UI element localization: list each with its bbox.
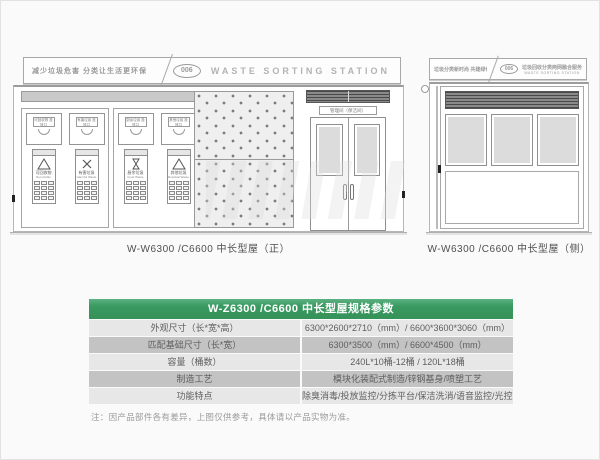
hourglass-icon	[129, 158, 143, 170]
spec-value: 除臭消毒/投放监控/分拣平台/保洁洗消/语音监控/光控照明	[302, 388, 513, 404]
port-label: 可回收物 投放口	[33, 117, 55, 127]
category-sign-panel: 厨余垃圾 Food Waste	[124, 149, 148, 204]
front-fascia-banner: 减少垃圾危害 分类让生活更环保 006 WASTE SORTING STATIO…	[23, 57, 401, 84]
category-sign-panel: 可回收物 Recyclable	[32, 149, 56, 204]
front-view-caption: W-W6300 /C6600 中长型屋（正）	[13, 240, 404, 255]
bin-name-en: Harmful Waste	[77, 176, 97, 180]
door-handle	[343, 184, 347, 200]
stone-panel-column	[194, 91, 294, 228]
cross-icon	[80, 158, 94, 170]
front-signage-strip	[21, 91, 201, 102]
deposit-bay-1: 可回收物 投放口 可回收物 Recyclable 有	[21, 108, 109, 228]
chute-flap	[173, 129, 185, 135]
chute-flap	[81, 129, 93, 135]
spec-value: 240L*10桶-12桶 / 120L*18桶	[302, 354, 513, 370]
spec-table: W-Z6300 /C6600 中长型屋规格参数 外观尺寸（长*宽*高） 6300…	[89, 299, 513, 404]
vent-louver	[306, 90, 390, 103]
spec-table-title: W-Z6300 /C6600 中长型屋规格参数	[89, 299, 513, 319]
spec-label: 外观尺寸（长*宽*高）	[89, 320, 300, 336]
side-vent-circle	[421, 85, 429, 93]
spec-label: 匹配基础尺寸（长*宽）	[89, 337, 300, 353]
instruction-grid	[169, 181, 189, 200]
door-glass	[354, 124, 381, 176]
deposit-unit-harmful: 有害垃圾 投放口 有害垃圾 Harmful Waste	[65, 109, 108, 227]
management-room-section: 管理间（保洁间）	[302, 87, 394, 233]
deposit-window: 厨余垃圾 投放口	[118, 113, 154, 145]
side-window	[537, 114, 579, 166]
door-sign: 管理间（保洁间）	[319, 106, 377, 115]
spec-value: 6300*2600*2710（mm）/ 6600*3600*3060（mm）	[302, 320, 513, 336]
spec-label: 制造工艺	[89, 371, 300, 387]
table-row: 制造工艺 模块化装配式制造/锌钢基身/喷塑工艺	[89, 371, 513, 387]
front-banner-title: WASTE SORTING STATION	[201, 66, 400, 76]
door-leaf-right	[349, 118, 386, 230]
side-window	[445, 114, 487, 166]
front-base-line	[10, 232, 407, 235]
category-sign-panel: 其他垃圾 Residual Waste	[167, 149, 191, 204]
side-fascia-banner: 垃圾分类新时尚 共建绿色新家园 006 垃圾回收分类两网融合服务 WASTE S…	[429, 58, 587, 80]
recycle-icon	[172, 158, 186, 170]
wall-tick-mark	[12, 195, 15, 202]
stone-panel-upper	[194, 91, 294, 160]
front-elevation-drawing: 可回收物 投放口 可回收物 Recyclable 有	[13, 85, 404, 232]
deposit-bay-2: 厨余垃圾 投放口 厨余垃圾 Food Waste 其	[113, 108, 201, 228]
deposit-window: 可回收物 投放口	[26, 113, 62, 145]
instruction-grid	[126, 181, 146, 200]
side-vent-louver	[445, 91, 579, 109]
spec-value: 模块化装配式制造/锌钢基身/喷塑工艺	[302, 371, 513, 387]
deposit-window: 其他垃圾 投放口	[161, 113, 197, 145]
bin-name-en: Residual Waste	[168, 176, 189, 180]
port-label: 有害垃圾 投放口	[76, 117, 98, 127]
deposit-unit-food: 厨余垃圾 投放口 厨余垃圾 Food Waste	[114, 109, 157, 227]
side-view-caption: W-W6300 /C6600 中长型屋（侧）	[421, 240, 597, 255]
instruction-grid	[34, 181, 54, 200]
instruction-grid	[77, 181, 97, 200]
door-leaf-left	[311, 118, 349, 230]
spec-label: 功能特点	[89, 388, 300, 404]
table-row: 功能特点 除臭消毒/投放监控/分拣平台/保洁洗消/语音监控/光控照明	[89, 388, 513, 404]
bin-name-en: Food Waste	[127, 176, 143, 180]
spec-value: 6300*3500（mm）/ 6600*4500（mm）	[302, 337, 513, 353]
side-base-line	[426, 232, 592, 235]
table-row: 外观尺寸（长*宽*高） 6300*2600*2710（mm）/ 6600*360…	[89, 320, 513, 336]
side-banner-title-cn: 垃圾回收分类两网融合服务	[522, 64, 582, 71]
table-footnote: 注：因产品部件各有差异，上图仅供参考，具体请以产品实物为准。	[91, 411, 355, 423]
wall-tick-mark	[438, 165, 441, 173]
side-wall-panel	[440, 86, 584, 229]
wall-tick-mark	[402, 191, 405, 198]
station-number-badge: 006	[500, 64, 518, 74]
door-glass	[316, 124, 343, 176]
side-window-row	[445, 114, 579, 166]
side-lower-panel	[445, 171, 579, 224]
chute-flap	[130, 129, 142, 135]
sign-header-chip	[76, 150, 98, 156]
chute-flap	[38, 129, 50, 135]
stone-panel-lower	[194, 160, 294, 228]
bin-name-en: Recyclable	[36, 176, 52, 180]
sign-header-chip	[33, 150, 55, 156]
port-label: 厨余垃圾 投放口	[125, 117, 147, 127]
port-label: 其他垃圾 投放口	[168, 117, 190, 127]
deposit-window: 有害垃圾 投放口	[69, 113, 105, 145]
sign-header-chip	[168, 150, 190, 156]
station-number-badge: 006	[173, 64, 201, 78]
banner-divider	[488, 56, 499, 83]
double-door	[310, 117, 386, 231]
product-spec-sheet: 减少垃圾危害 分类让生活更环保 006 WASTE SORTING STATIO…	[0, 0, 600, 460]
side-corner-stile	[436, 86, 438, 229]
sign-header-chip	[125, 150, 147, 156]
side-banner-title-en: WASTE SORTING STATION	[522, 71, 582, 75]
front-banner-slogan: 减少垃圾危害 分类让生活更环保	[24, 66, 160, 76]
category-sign-panel: 有害垃圾 Harmful Waste	[75, 149, 99, 204]
side-banner-slogan: 垃圾分类新时尚 共建绿色新家园	[430, 66, 487, 73]
side-window	[491, 114, 533, 166]
deposit-unit-recyclable: 可回收物 投放口 可回收物 Recyclable	[22, 109, 65, 227]
side-elevation-drawing	[429, 82, 589, 232]
recycle-icon	[37, 158, 51, 170]
banner-divider	[160, 54, 173, 87]
door-handle	[350, 184, 354, 200]
table-row: 容量（桶数） 240L*10桶-12桶 / 120L*18桶	[89, 354, 513, 370]
spec-label: 容量（桶数）	[89, 354, 300, 370]
table-row: 匹配基础尺寸（长*宽） 6300*3500（mm）/ 6600*4500（mm）	[89, 337, 513, 353]
